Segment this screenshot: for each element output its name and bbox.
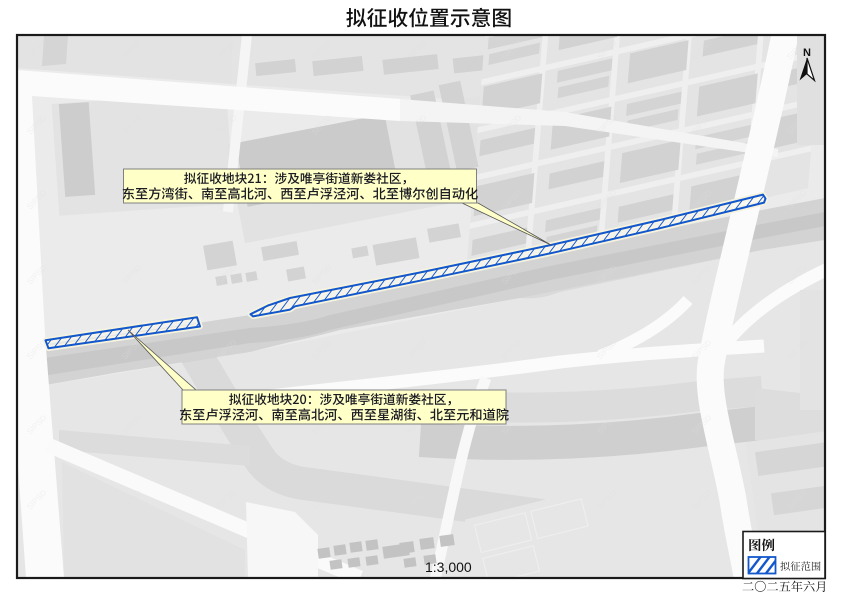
svg-text:N: N: [803, 47, 811, 59]
svg-text:1:3,000: 1:3,000: [425, 559, 472, 575]
